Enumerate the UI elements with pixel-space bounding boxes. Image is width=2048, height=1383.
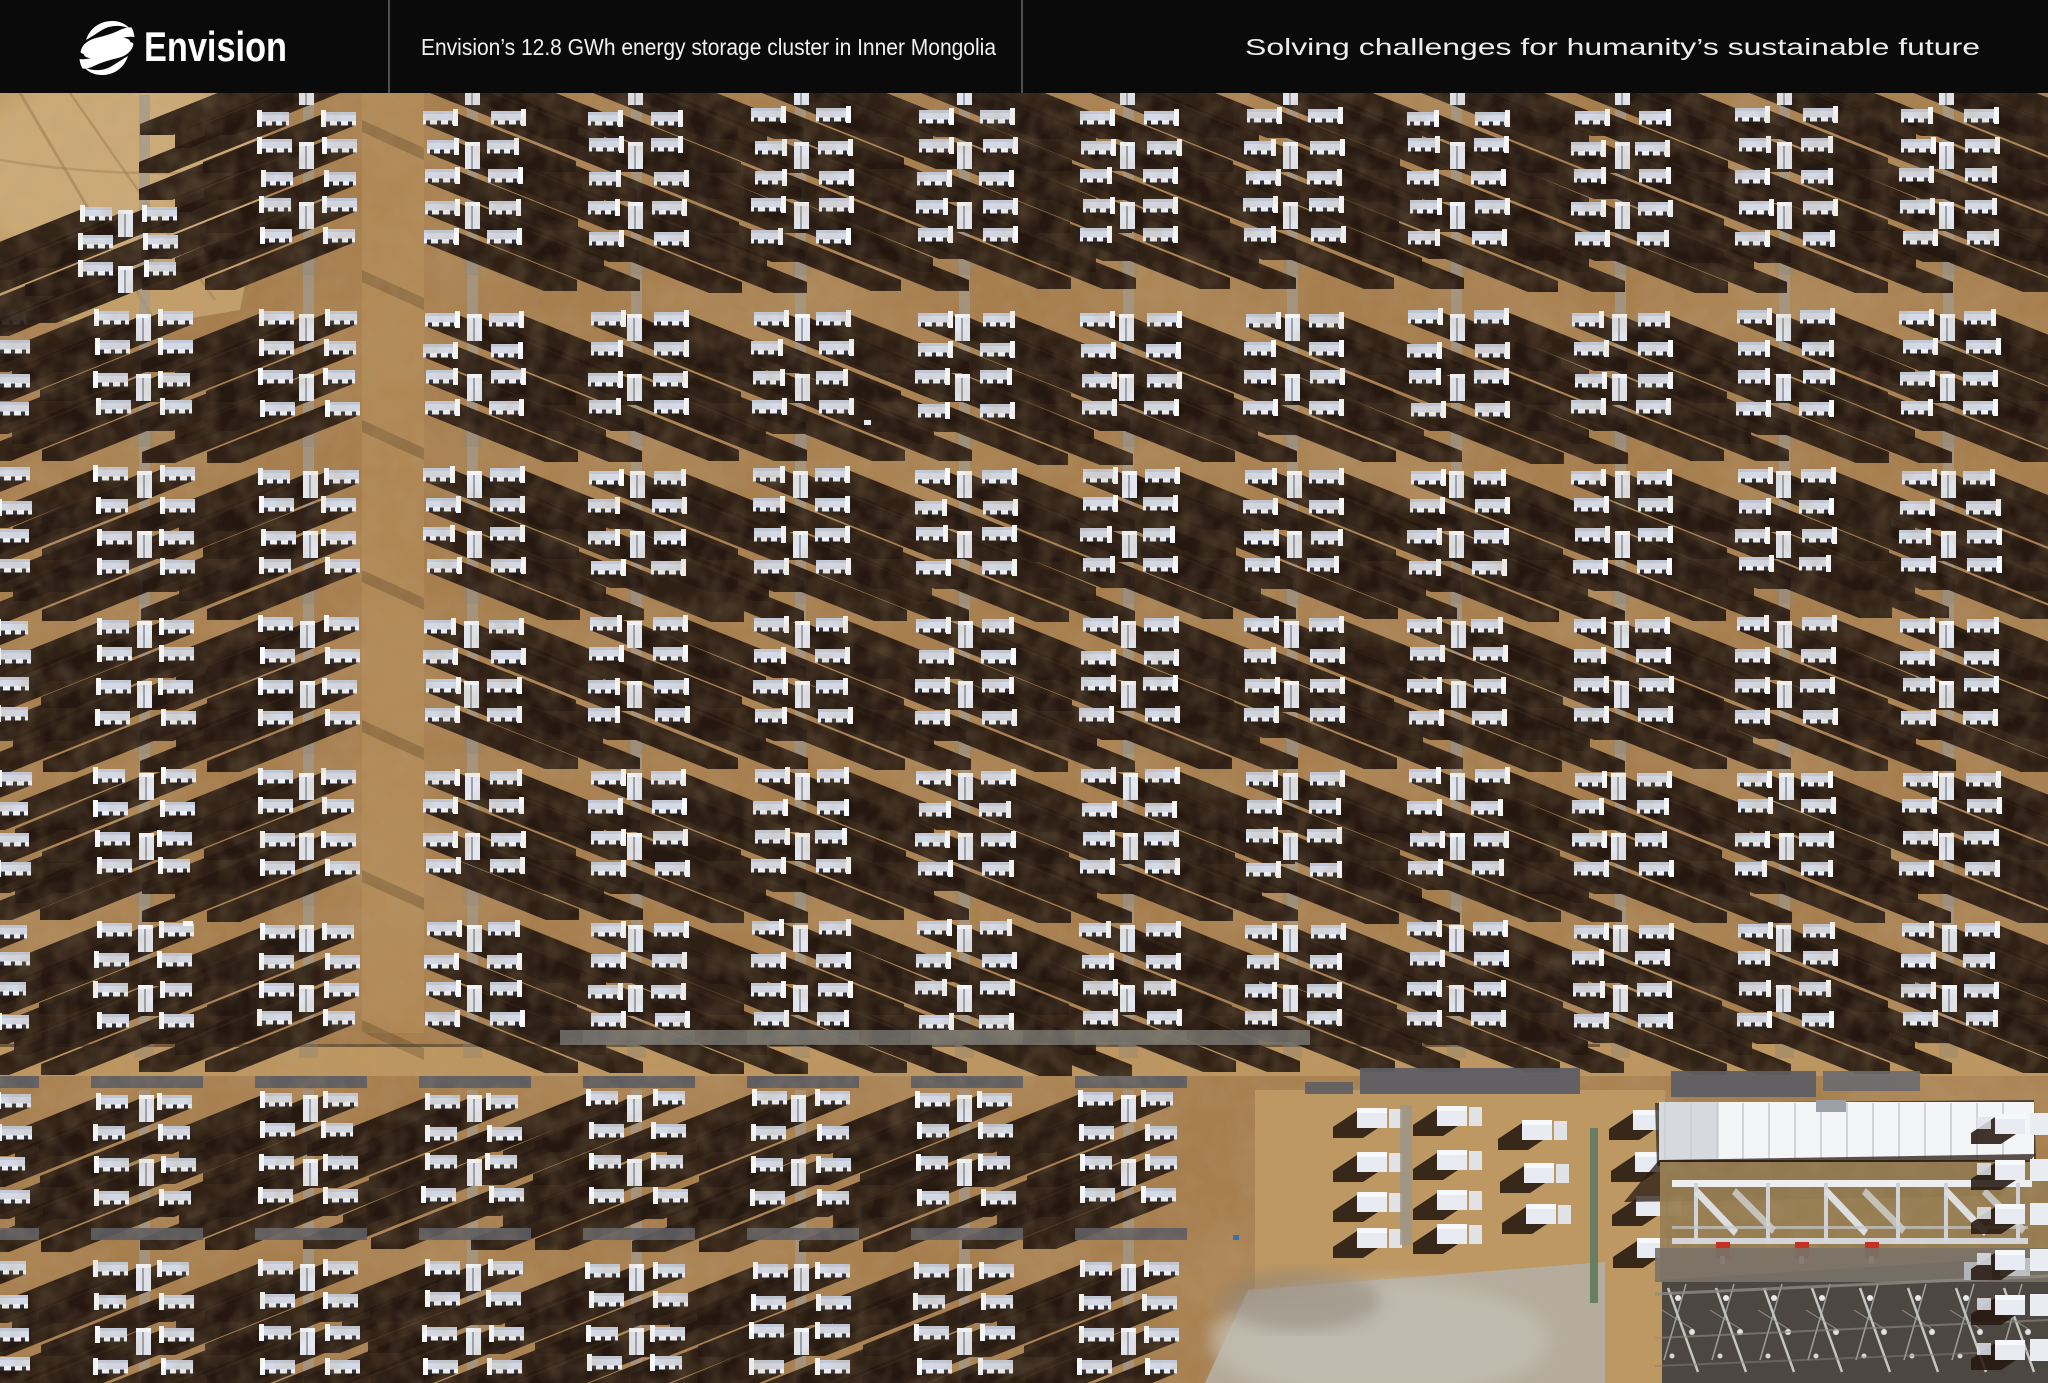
svg-text:Envision’s 12.8 GWh energy sto: Envision’s 12.8 GWh energy storage clust… <box>421 34 996 60</box>
svg-text:Solving challenges for humanit: Solving challenges for humanity’s sustai… <box>1245 34 1980 60</box>
svg-text:Envision: Envision <box>144 23 287 70</box>
